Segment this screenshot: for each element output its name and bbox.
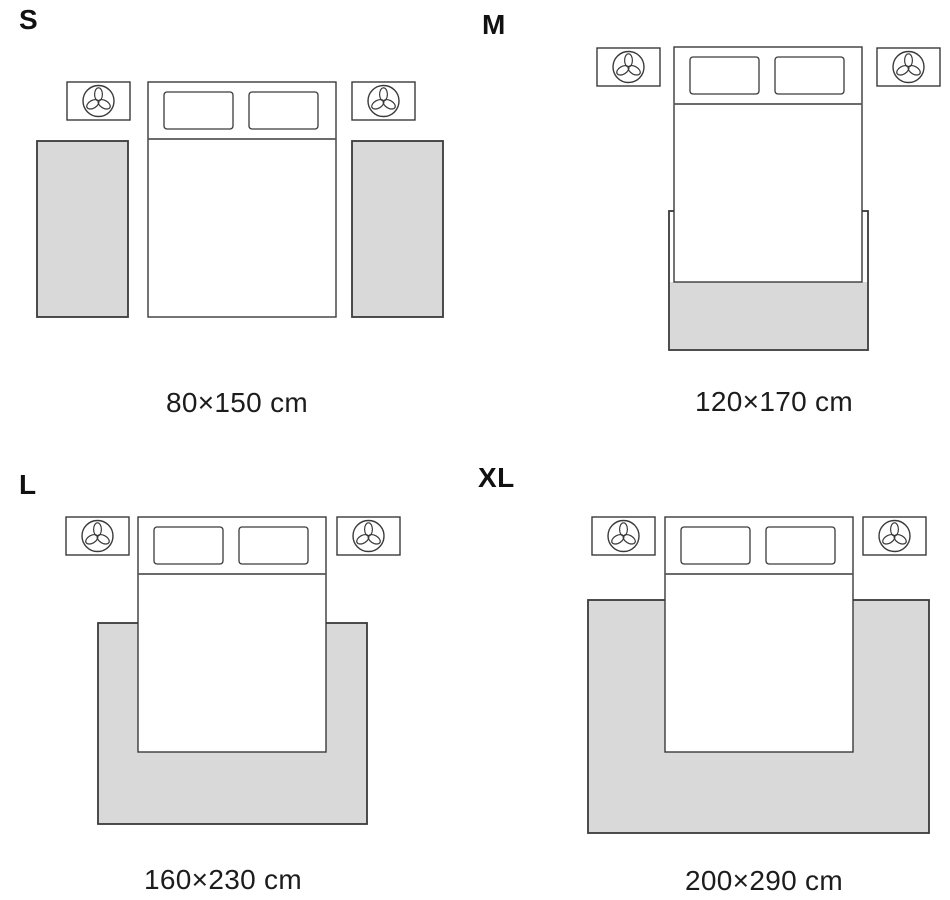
- nightstand-left: [592, 517, 655, 555]
- room-diagram-s: [0, 0, 475, 450]
- nightstand-right: [863, 517, 926, 555]
- bed: [148, 82, 336, 317]
- room-diagram-xl: [475, 450, 950, 900]
- rug-right-runner: [352, 141, 443, 317]
- size-caption-xl: 200×290 cm: [685, 867, 843, 895]
- bed: [674, 47, 862, 282]
- size-option-s: S 80×150 cm: [0, 0, 475, 450]
- nightstand-right: [877, 48, 940, 86]
- bed: [138, 517, 326, 752]
- nightstand-left: [597, 48, 660, 86]
- nightstand-left: [66, 517, 129, 555]
- room-diagram-l: [0, 450, 475, 900]
- bed: [665, 517, 853, 752]
- nightstand-right: [352, 82, 415, 120]
- size-option-m: M 120×170 cm: [475, 0, 950, 450]
- size-caption-l: 160×230 cm: [144, 866, 302, 894]
- rug-visible-area: [670, 282, 867, 349]
- size-option-xl: XL 200×290 cm: [475, 450, 950, 900]
- rug-size-guide: S 80×150 cm M 120×170 cm L 160×2: [0, 0, 950, 900]
- room-diagram-m: [475, 0, 950, 450]
- nightstand-left: [67, 82, 130, 120]
- size-caption-s: 80×150 cm: [166, 389, 308, 417]
- size-caption-m: 120×170 cm: [695, 388, 853, 416]
- size-option-l: L 160×230 cm: [0, 450, 475, 900]
- rug-left-runner: [37, 141, 128, 317]
- nightstand-right: [337, 517, 400, 555]
